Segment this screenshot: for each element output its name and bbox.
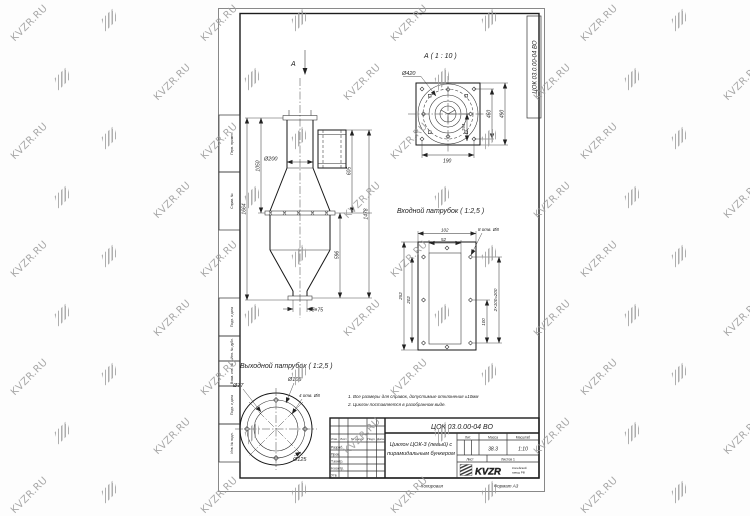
part-name-line1: Циклон ЦОК-3 (левый) с	[390, 441, 453, 448]
note-line-1: 1. Все размеры для справок, допустимые о…	[348, 394, 478, 399]
sheets-label: Листов 1	[501, 458, 515, 462]
dim-outlet-inner-dia: Ø77	[232, 383, 244, 389]
dim-outlet-holes: 4 отв. Ø8	[299, 393, 320, 398]
dim-inner-width: 194	[461, 123, 466, 131]
row-tcontrol: Т.контр.	[331, 460, 343, 464]
col-izm: Изм.	[331, 437, 338, 441]
row-ncontrol: Н.контр.	[331, 467, 344, 471]
stamp-label: Взам. инв. №	[230, 363, 234, 384]
logo-caption-1: Копейский	[512, 466, 527, 470]
copied-label: Копировал	[421, 484, 444, 489]
dim-outer-square: 490	[500, 110, 506, 119]
dim-inlet-inner-height: 202	[406, 296, 411, 305]
title-block: Изм. Лист № докум. Подп. Дата Разраб. Пр…	[330, 418, 539, 489]
main-view-dimensions: 1664 1050 Ø200 605 596 1478 75×75	[242, 118, 373, 314]
dim-outlet-outer-dia: Ø125	[292, 457, 307, 463]
stamp-label: Инв. № подл.	[230, 432, 234, 453]
lit-label: Лит.	[465, 436, 471, 440]
inlet-view: Входной патрубок ( 1:2,5 ) 102 52 8 отв.…	[397, 207, 502, 350]
dim-inlet-inner-width: 52	[441, 237, 447, 242]
detail-a-title: А ( 1 : 10 )	[423, 53, 457, 60]
logo-caption-2: завод РФ	[512, 471, 526, 475]
mass-value: 38.3	[488, 447, 498, 453]
dim-inlet-height: 605	[347, 167, 353, 176]
scale-value: 1:10	[518, 447, 528, 453]
doc-number-vertical: ЦОК 03.0.00-04 ВО	[533, 40, 539, 93]
notes: 1. Все размеры для справок, допустимые о…	[347, 394, 478, 407]
view-arrow-label: А	[290, 61, 296, 68]
dim-right-height: 1478	[364, 208, 370, 219]
outlet-title: Выходной патрубок ( 1:2,5 )	[240, 362, 333, 370]
row-developed: Разраб.	[331, 446, 343, 450]
outlet-view: Выходной патрубок ( 1:2,5 ) Ø77 Ø105 4 о…	[232, 362, 333, 470]
stamp-label: Перв. примен.	[230, 132, 234, 155]
dim-total-height: 1664	[242, 203, 248, 214]
col-list: Лист	[340, 437, 347, 441]
col-doc: № докум.	[351, 437, 364, 441]
dim-detail-diameter: Ø420	[401, 71, 416, 77]
dim-body-diameter: Ø200	[263, 157, 278, 163]
dim-inlet-pitch-half: 100	[481, 318, 486, 326]
dim-inlet-pitch: 2×100=200	[493, 288, 498, 312]
part-name-line2: пирамидальным бункером	[387, 451, 455, 457]
dim-outlet-size: 75×75	[309, 308, 323, 314]
scale-label: Масштаб	[516, 436, 531, 440]
stamp-label: Справ. №	[230, 193, 234, 209]
dim-inlet-outer-height: 252	[398, 292, 403, 301]
dim-hopper-height: 596	[335, 251, 341, 260]
sheet-label: Лист	[466, 458, 474, 462]
note-line-2: 2. Циклон поставляется в разобранном вид…	[347, 402, 446, 407]
stamp-label: Подп. и дата	[230, 395, 234, 415]
stamp-label: Инв. № дубл.	[230, 338, 234, 359]
inlet-title: Входной патрубок ( 1:2,5 )	[397, 207, 484, 215]
col-sign: Подп.	[368, 437, 376, 441]
title-doc-number: ЦОК 03.0.00-04 ВО	[431, 424, 494, 431]
detail-a-view: А ( 1 : 10 ) Ø420 460 490 190	[401, 53, 508, 165]
dim-inlet-outer-width: 102	[441, 228, 449, 233]
row-checked: Пров.	[331, 453, 340, 457]
stamp-label: Подп. и дата	[230, 307, 234, 327]
kvzr-logo-mark-icon	[460, 465, 472, 476]
row-approved: Утв.	[331, 474, 338, 478]
dim-upper-height: 1050	[256, 160, 262, 171]
mass-label: Масса	[488, 436, 498, 440]
kvzr-logo-text: KVZR	[475, 467, 501, 478]
dim-outlet-bolt-dia: Ø105	[287, 377, 302, 383]
main-view: А	[265, 50, 346, 318]
col-date: Дата	[377, 437, 384, 441]
dim-bottom-width: 190	[443, 159, 452, 165]
dim-inlet-holes: 8 отв. Ø8	[478, 227, 499, 232]
format-label: Формат А3	[494, 484, 519, 489]
engineering-drawing-canvas: Перв. примен. Справ. № Подп. и дата Инв.…	[0, 0, 750, 500]
dim-bolt-square: 460	[487, 110, 493, 119]
